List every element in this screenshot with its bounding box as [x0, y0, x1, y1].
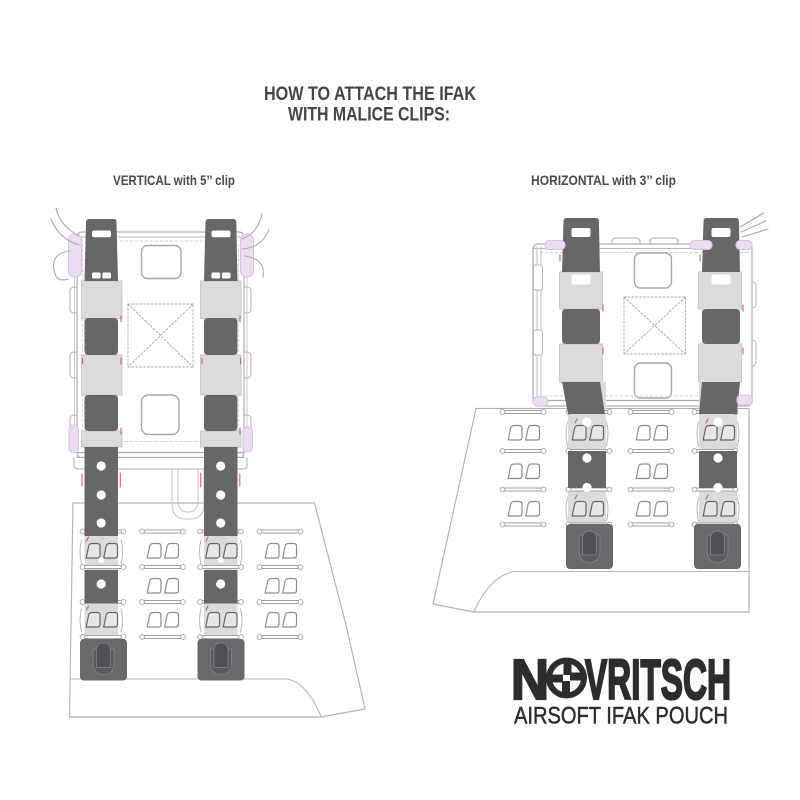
svg-text:VERTICAL with 5’’ clip: VERTICAL with 5’’ clip: [113, 172, 235, 188]
svg-text:HORIZONTAL with 3’’ clip: HORIZONTAL with 3’’ clip: [531, 172, 676, 188]
svg-text:WITH MALICE CLIPS:: WITH MALICE CLIPS:: [288, 104, 450, 126]
svg-text:HOW TO ATTACH THE IFAK: HOW TO ATTACH THE IFAK: [264, 83, 476, 105]
svg-text:AIRSOFT IFAK POUCH: AIRSOFT IFAK POUCH: [514, 703, 728, 730]
